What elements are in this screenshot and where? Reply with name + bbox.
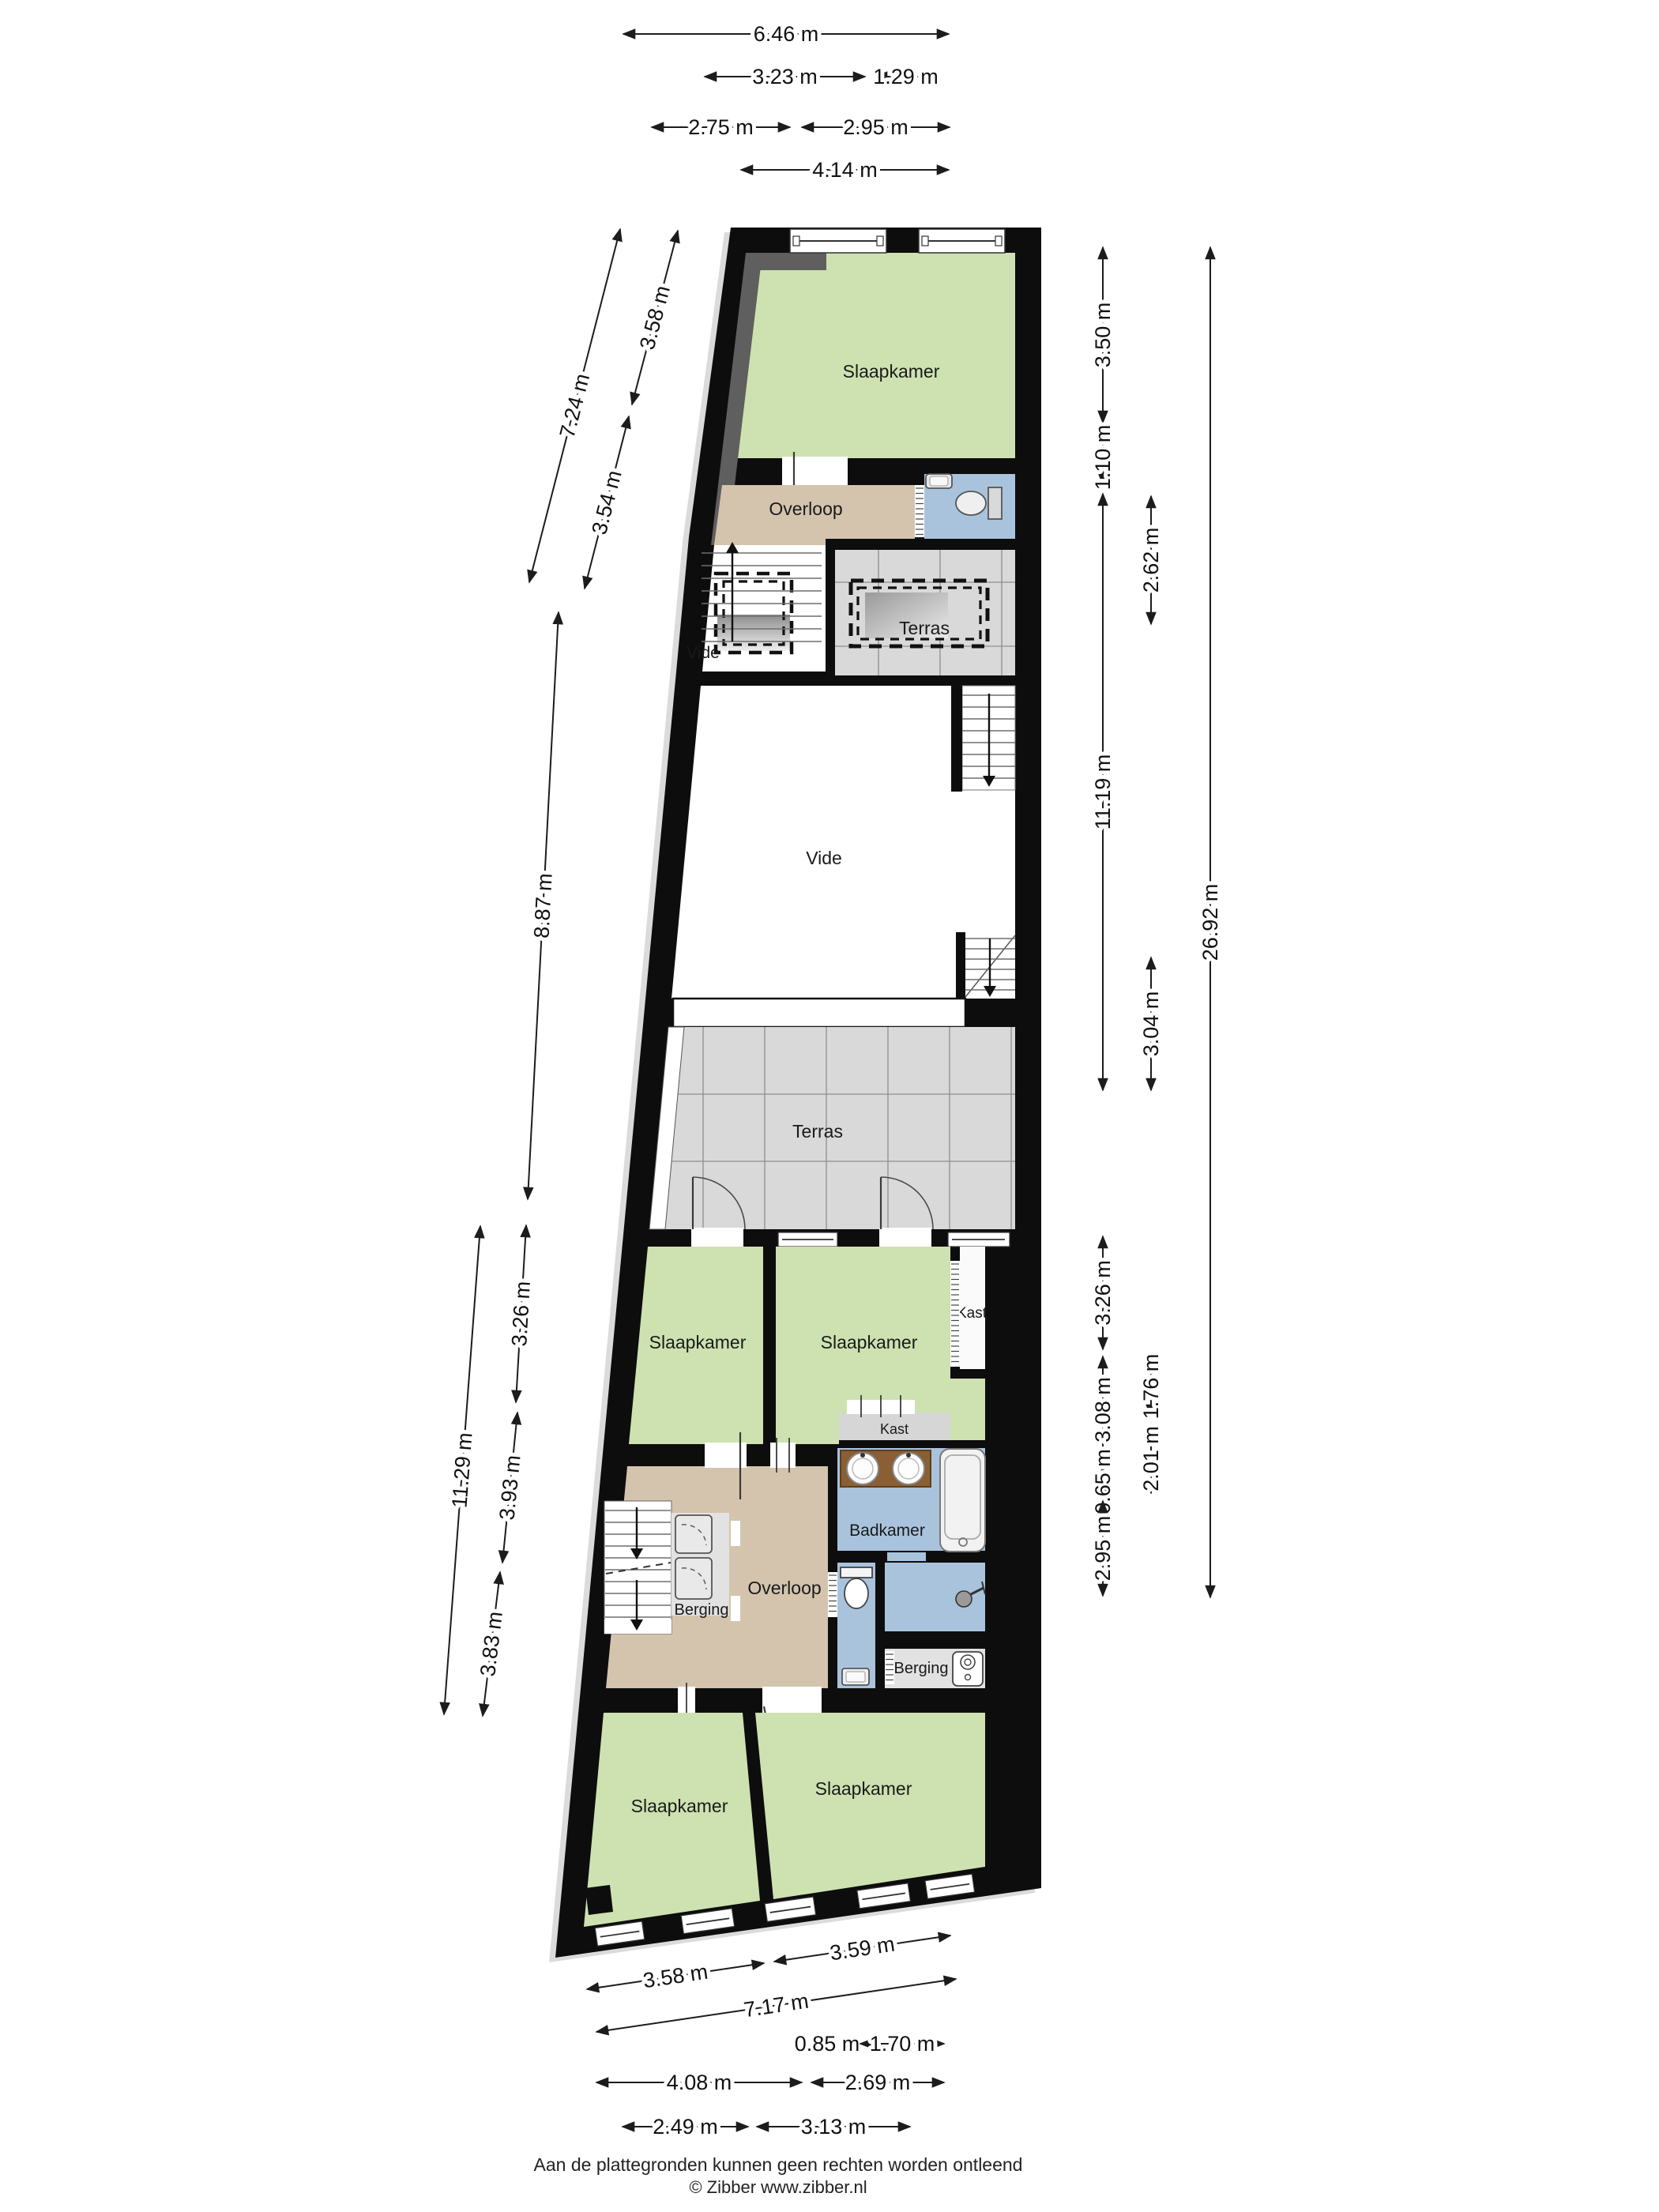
dimension-label: 2.49 m xyxy=(653,2115,718,2139)
room-label-badkamer: Badkamer xyxy=(849,1522,925,1540)
room-label-berging-left: Berging xyxy=(675,1601,729,1619)
terrace-window-2 xyxy=(948,1232,1010,1247)
dimension-label: 3.26 m xyxy=(507,1281,535,1347)
sliding-door-icon xyxy=(885,1651,894,1684)
dimension: 1.76 m xyxy=(1139,1354,1163,1420)
dimension-label: 2.95 m xyxy=(1091,1516,1115,1582)
dimension: 3.04 m xyxy=(1139,957,1163,1090)
dimension-label: 3.54 m xyxy=(587,468,626,536)
window-top-2 xyxy=(919,229,1005,253)
washer-icon xyxy=(675,1515,712,1553)
dimension-label: 4.08 m xyxy=(667,2071,732,2094)
door-opening-top xyxy=(782,457,848,487)
dimension: 3.58 m xyxy=(632,231,678,404)
vanity-double-sink-icon xyxy=(841,1450,931,1487)
dimension-label: 4.14 m xyxy=(812,158,878,182)
dimension: 3.93 m xyxy=(495,1413,525,1563)
footer-disclaimer: Aan de plattegronden kunnen geen rechten… xyxy=(534,2154,1023,2175)
dimension: 4.14 m xyxy=(741,158,949,182)
dimension: 3.59 m xyxy=(774,1932,950,1966)
dimension: 8.87 m xyxy=(528,612,559,1199)
dimension-label: 1.70 m xyxy=(870,2032,935,2056)
sink-icon xyxy=(842,1668,869,1685)
stairs-icon xyxy=(951,686,1015,792)
dimension-label: 3.26 m xyxy=(1091,1260,1115,1326)
dimension: 1.70 m xyxy=(860,2032,944,2056)
room-label-slaapkamer-bottom-right: Slaapkamer xyxy=(815,1778,912,1799)
dimension: 2.95 m xyxy=(802,115,950,139)
wall-notch xyxy=(585,1885,613,1915)
dimension: 3.26 m xyxy=(507,1225,535,1402)
dimension: 4.08 m xyxy=(596,2071,802,2094)
room-label-slaapkamer-bottom-left: Slaapkamer xyxy=(631,1796,728,1816)
terrace-window-1 xyxy=(778,1232,837,1247)
dryer-icon xyxy=(675,1558,712,1599)
dimension-label: 3.13 m xyxy=(801,2115,867,2139)
dimension-label: 6.46 m xyxy=(754,22,819,46)
dimension-label: 3.58 m xyxy=(635,283,675,352)
dimension-label: 2.69 m xyxy=(845,2071,911,2094)
dimension: 1.10 m xyxy=(1091,425,1115,491)
dimension: 2.69 m xyxy=(811,2071,944,2094)
room-label-slaapkamer-mid-left: Slaapkamer xyxy=(649,1332,747,1352)
floorplan-page: Slaapkamer Overloop Terras Vide Vide xyxy=(0,0,1659,2212)
dimension: 3.13 m xyxy=(757,2115,910,2139)
dimension: 26.92 m xyxy=(1198,247,1222,1597)
room-label-slaapkamer-top: Slaapkamer xyxy=(843,361,940,382)
sliding-door-icon xyxy=(828,1572,837,1617)
dimension: 0.85 m xyxy=(795,2032,860,2056)
dimension-label: 8.87 m xyxy=(529,872,556,939)
dimension-label: 3.50 m xyxy=(1091,303,1115,368)
room-label-berging-right: Berging xyxy=(894,1660,949,1677)
dimension-label: 3.93 m xyxy=(495,1454,525,1521)
dimension-label: 2.62 m xyxy=(1139,528,1163,593)
dimension: 3.26 m xyxy=(1091,1236,1115,1349)
room-label-kast-mid: Kast xyxy=(880,1421,908,1437)
dimension-label: 3.58 m xyxy=(641,1960,709,1993)
sink-icon xyxy=(926,474,952,488)
room-slaapkamer-top xyxy=(726,253,1015,458)
floorplan-svg: Slaapkamer Overloop Terras Vide Vide xyxy=(0,0,1659,2212)
dimension-label: 2.75 m xyxy=(688,115,754,139)
footer-credit: © Zibber www.zibber.nl xyxy=(689,2177,867,2197)
dimension-label: 1.29 m xyxy=(873,65,939,88)
bathtub-icon xyxy=(940,1449,985,1552)
dimension: 3.58 m xyxy=(587,1960,764,1993)
room-label-terras-main: Terras xyxy=(792,1121,843,1142)
room-label-vide-stair: Vide xyxy=(687,644,720,662)
dimension-label: 26.92 m xyxy=(1198,884,1222,961)
dimension-label: 7.24 m xyxy=(555,371,595,440)
room-slaapkamer-bottom-right xyxy=(755,1713,985,1899)
dimension: 3.54 m xyxy=(585,416,629,589)
dimension-label: 2.95 m xyxy=(843,115,908,139)
dimension-label: 3.59 m xyxy=(828,1932,896,1966)
dimension: 3.23 m xyxy=(705,65,865,88)
dimension-label: 7.17 m xyxy=(742,1989,810,2022)
boiler-icon xyxy=(953,1652,983,1686)
stairs-icon xyxy=(604,1501,671,1634)
room-label-terras-small: Terras xyxy=(899,618,950,638)
stairwell-upper xyxy=(702,545,826,671)
dimension: 1.29 m xyxy=(873,65,939,88)
dimension: 2.49 m xyxy=(623,2115,748,2139)
dimension: 11.29 m xyxy=(444,1226,480,1714)
room-terras-small xyxy=(835,550,1015,675)
room-label-overloop-top: Overloop xyxy=(769,498,842,519)
dimension-label: 3.23 m xyxy=(752,65,818,88)
room-label-slaapkamer-mid-right: Slaapkamer xyxy=(821,1332,918,1352)
dimension-label: 1.10 m xyxy=(1091,425,1115,491)
dimension-label: 2.01 m xyxy=(1139,1426,1163,1492)
dimension-label: 11.29 m xyxy=(447,1431,476,1509)
dimension: 2.95 m xyxy=(1091,1501,1115,1596)
room-label-overloop-main: Overloop xyxy=(747,1578,821,1598)
dimension-label: 3.83 m xyxy=(476,1610,507,1678)
shower-opening xyxy=(887,1552,926,1561)
dimension: 6.46 m xyxy=(623,22,949,46)
dimension: 11.19 m xyxy=(1091,494,1115,1090)
vide-railing xyxy=(673,999,965,1027)
dimension-label: 11.19 m xyxy=(1091,754,1115,830)
dimension-label: 1.76 m xyxy=(1139,1354,1163,1420)
dimension: 3.50 m xyxy=(1091,247,1115,423)
dimension: 2.75 m xyxy=(652,115,790,139)
dimension-label: 3.08 m xyxy=(1091,1377,1115,1443)
dimension: 2.01 m xyxy=(1139,1424,1163,1493)
dimension-label: 0.85 m xyxy=(795,2032,860,2056)
room-label-vide-main: Vide xyxy=(806,848,842,868)
window-top-1 xyxy=(790,229,886,253)
dimension-label: 3.04 m xyxy=(1139,991,1163,1057)
room-label-kast-right: Kast xyxy=(957,1305,987,1322)
dimension: 3.83 m xyxy=(476,1572,507,1716)
dimension: 2.62 m xyxy=(1139,496,1163,624)
dimension: 3.08 m xyxy=(1091,1356,1115,1463)
